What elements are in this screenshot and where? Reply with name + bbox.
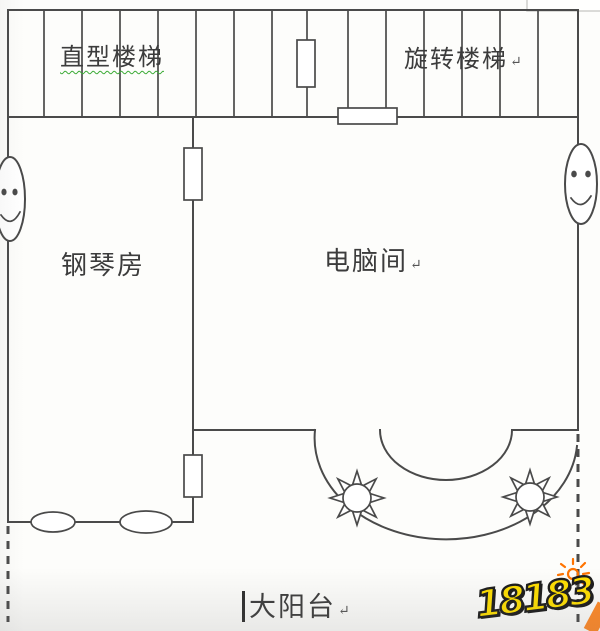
door-symbol-lower [184, 455, 202, 497]
planter-icon [31, 512, 75, 532]
smiley-face-icon [565, 144, 597, 224]
label-spiral-staircase: 旋转楼梯↵ [404, 48, 522, 72]
sun-icon [330, 471, 384, 525]
return-mark: ↵ [338, 604, 350, 619]
planter-icon [120, 511, 172, 533]
smiley-face-icon [0, 157, 25, 241]
door-symbol-upper [184, 148, 202, 200]
return-mark: ↵ [410, 258, 422, 273]
label-piano-room: 钢琴房 [61, 253, 145, 279]
return-mark: ↵ [510, 55, 522, 70]
label-text: 大阳台 [249, 592, 336, 622]
label-computer-room: 电脑间↵ [324, 249, 422, 275]
label-balcony: 大阳台↵ [249, 594, 350, 621]
label-straight-staircase: 直型楼梯 [60, 46, 164, 70]
floor-plan-drawing [0, 0, 600, 631]
label-text: 旋转楼梯 [404, 47, 508, 73]
text-cursor [242, 591, 245, 622]
label-text: 电脑间 [324, 247, 408, 276]
floor-plan: 直型楼梯 旋转楼梯↵ 钢琴房 电脑间↵ 大阳台↵ 18183 [0, 0, 600, 631]
balcony-inner-arc [380, 430, 512, 480]
stair-landing-symbol [338, 108, 397, 124]
sun-icon [503, 470, 557, 524]
stair-door-symbol [297, 40, 315, 87]
